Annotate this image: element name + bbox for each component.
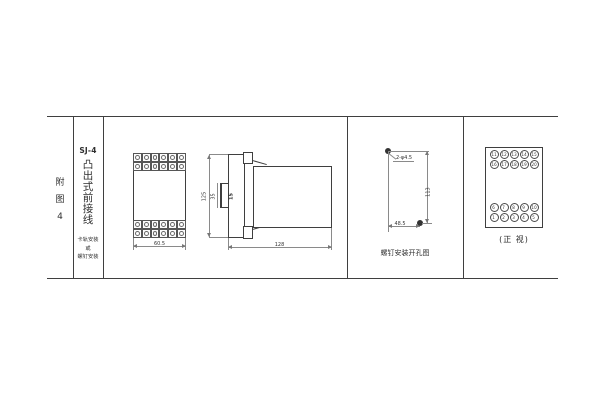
- screw-terminal: [177, 220, 186, 229]
- terminal-circle-19: 19: [520, 160, 529, 169]
- ext-line: [209, 237, 228, 238]
- terminal-circle-13: 13: [510, 150, 519, 159]
- mounting-ear-top: [243, 152, 253, 164]
- leader-underline: [393, 161, 414, 162]
- screw-terminal: [168, 153, 177, 162]
- arrow-icon: [133, 244, 137, 248]
- arrow-icon: [228, 245, 232, 249]
- terminal-circle-14: 14: [520, 150, 529, 159]
- construction-line-vertical: [388, 151, 389, 232]
- terminal-number: 16: [491, 162, 496, 167]
- terminal-row-16-20: 1617181920: [488, 160, 540, 169]
- terminal-number: 15: [531, 152, 536, 157]
- text-line: 螺钉安装: [74, 253, 103, 261]
- text-line: 线: [73, 215, 103, 226]
- text-line: 卡轨安装: [74, 236, 103, 244]
- screw-terminal: [159, 220, 168, 229]
- terminal-row-1-5: 12345: [488, 213, 540, 222]
- arrow-icon: [425, 151, 429, 155]
- terminal-number: 19: [521, 162, 526, 167]
- terminal-circle-18: 18: [510, 160, 519, 169]
- ext-line: [422, 223, 432, 224]
- rail-dimension-label: 35: [210, 192, 216, 201]
- terminal-number: 6: [493, 205, 496, 210]
- terminal-number: 11: [491, 152, 496, 157]
- terminal-circle-8: 8: [510, 203, 519, 212]
- screw-terminal: [168, 229, 177, 238]
- rail-dimension-line: [217, 183, 218, 208]
- terminal-circle-6: 6: [490, 203, 499, 212]
- screw-terminal: [159, 153, 168, 162]
- terminal-block-bottom: [133, 220, 186, 238]
- column-divider-4: [463, 116, 464, 279]
- screw-terminal: [177, 153, 186, 162]
- terminal-number: 5: [533, 215, 536, 220]
- sheet-bottom-border: [47, 278, 558, 279]
- terminal-circle-3: 3: [510, 213, 519, 222]
- scanned-drawing-sheet: 附图4 SJ-4 凸出式前接线 卡轨安装或螺钉安装 60.5 125 35 15…: [0, 0, 600, 400]
- terminal-circle-17: 17: [500, 160, 509, 169]
- screw-terminal: [151, 153, 160, 162]
- screw-terminal: [168, 220, 177, 229]
- text-line: 或: [74, 245, 103, 253]
- terminal-number: 14: [521, 152, 526, 157]
- terminal-circle-20: 20: [530, 160, 539, 169]
- screw-terminal: [142, 153, 151, 162]
- column-divider-2: [103, 116, 104, 279]
- terminal-number: 18: [511, 162, 516, 167]
- figure-number-label: 附图4: [47, 175, 73, 226]
- mounting-ear-bottom: [243, 226, 253, 239]
- screw-terminal: [168, 162, 177, 171]
- terminal-circle-1: 1: [490, 213, 499, 222]
- terminal-number: 1: [493, 215, 496, 220]
- width-dimension-label: 60.5: [143, 241, 176, 247]
- terminal-number: 4: [523, 215, 526, 220]
- panel-view-caption: (正 视): [485, 234, 543, 245]
- screw-terminal: [177, 229, 186, 238]
- terminal-circle-16: 16: [490, 160, 499, 169]
- screw-terminal: [151, 162, 160, 171]
- terminal-circle-12: 12: [500, 150, 509, 159]
- terminal-number: 10: [531, 205, 536, 210]
- height-dimension-label: 125: [201, 192, 207, 202]
- terminal-circle-4: 4: [520, 213, 529, 222]
- terminal-number: 3: [513, 215, 516, 220]
- screw-terminal-row: [133, 229, 186, 238]
- screw-terminal: [142, 229, 151, 238]
- text-line: 附: [47, 175, 73, 192]
- lead-in-edge-top: [252, 160, 267, 165]
- arrow-icon: [416, 224, 420, 228]
- hole-spec-label: 2-φ4.5: [395, 155, 412, 161]
- screw-terminal-row: [133, 220, 186, 229]
- screw-terminal: [142, 220, 151, 229]
- terminal-number: 7: [503, 205, 506, 210]
- screw-terminal: [151, 220, 160, 229]
- clip-dimension-label: 15: [228, 192, 234, 201]
- arrow-icon: [328, 245, 332, 249]
- terminal-circle-11: 11: [490, 150, 499, 159]
- horizontal-spacing-label: 48.5: [391, 221, 408, 227]
- terminal-number: 17: [501, 162, 506, 167]
- arrow-icon: [207, 155, 211, 159]
- terminal-number: 8: [513, 205, 516, 210]
- terminal-number: 13: [511, 152, 516, 157]
- screw-terminal-row: [133, 162, 186, 171]
- mounting-note: 卡轨安装或螺钉安装: [73, 236, 103, 262]
- terminal-circle-2: 2: [500, 213, 509, 222]
- arrow-icon: [207, 233, 211, 237]
- terminal-row-6-10: 678910: [488, 203, 540, 212]
- screw-terminal: [151, 229, 160, 238]
- screw-terminal: [177, 162, 186, 171]
- terminal-circle-15: 15: [530, 150, 539, 159]
- terminal-number: 20: [531, 162, 536, 167]
- terminal-number: 9: [523, 205, 526, 210]
- construction-line-horizontal: [388, 151, 429, 152]
- wiring-type-label: 凸出式前接线: [73, 160, 103, 226]
- terminal-circle-10: 10: [530, 203, 539, 212]
- terminal-circle-5: 5: [530, 213, 539, 222]
- text-line: 4: [47, 209, 73, 226]
- screw-terminal: [133, 153, 142, 162]
- terminal-block-top: [133, 153, 186, 171]
- model-label: SJ-4: [73, 146, 103, 155]
- side-view-body: [253, 166, 332, 228]
- drill-diagram-caption: 螺钉安装开孔图: [347, 248, 463, 258]
- screw-terminal: [159, 162, 168, 171]
- arrow-icon: [182, 244, 186, 248]
- text-line: 图: [47, 192, 73, 209]
- terminal-circle-7: 7: [500, 203, 509, 212]
- terminal-number: 12: [501, 152, 506, 157]
- screw-terminal: [133, 162, 142, 171]
- terminal-number: 2: [503, 215, 506, 220]
- screw-terminal: [159, 229, 168, 238]
- screw-terminal: [142, 162, 151, 171]
- screw-terminal: [133, 229, 142, 238]
- vertical-spacing-label: 113: [425, 188, 431, 197]
- terminal-circle-9: 9: [520, 203, 529, 212]
- screw-terminal-row: [133, 153, 186, 162]
- depth-dimension-label: 128: [263, 242, 296, 248]
- sheet-top-border: [47, 116, 558, 117]
- ext-line: [209, 154, 228, 155]
- screw-terminal: [133, 220, 142, 229]
- terminal-row-11-15: 1112131415: [488, 150, 540, 159]
